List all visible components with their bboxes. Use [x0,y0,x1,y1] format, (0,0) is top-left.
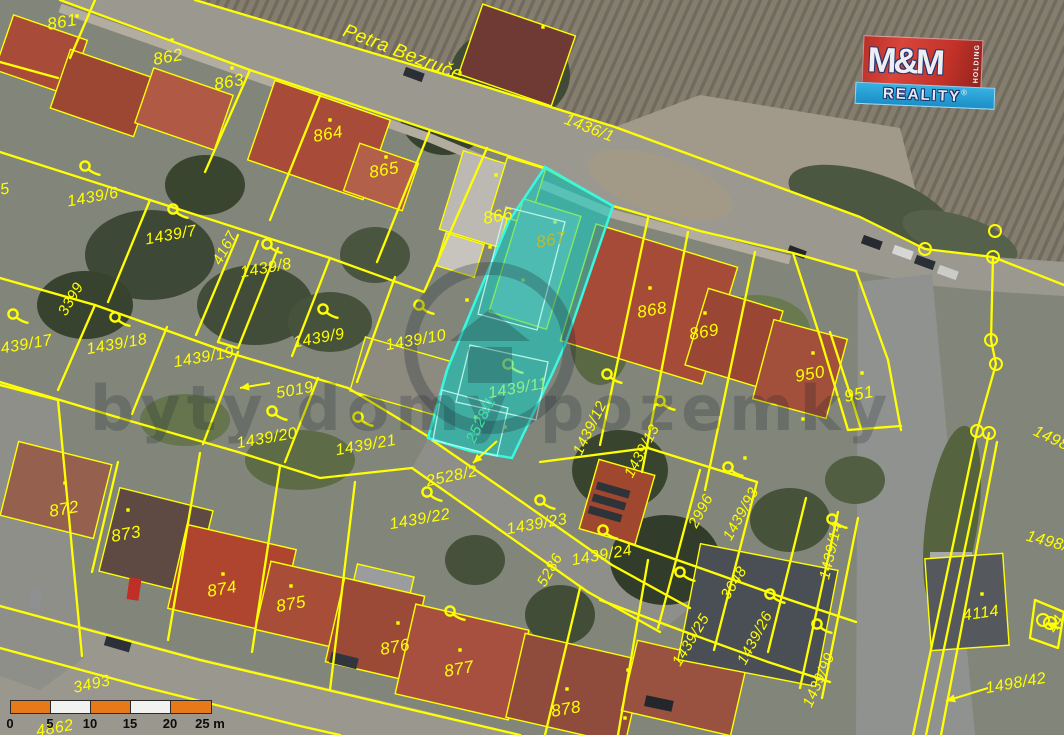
building-point [801,417,804,420]
building-point [230,66,233,69]
scale-tick-label: 20 [163,716,177,731]
building-point [458,648,461,651]
scale-bar-segments [10,700,212,714]
building-point [488,245,491,248]
building-point [465,298,468,301]
scale-tick-label: 25 m [195,716,225,731]
building-point [75,14,78,17]
logo-holding-text: HOLDING [973,44,982,84]
building-point [703,311,706,314]
building-point [980,592,983,595]
building-point [553,220,556,223]
building-point [565,687,568,690]
building-point [626,668,629,671]
logo-reality-text: REALITY [883,85,962,105]
scale-bar: 0510152025 m [10,700,250,730]
scale-segment [11,701,51,713]
registered-mark-icon: ® [961,88,967,97]
scale-tick-label: 10 [83,716,97,731]
building-point [743,456,746,459]
building-point [811,351,814,354]
logo-mm-text: M&M [867,40,943,83]
building-point [503,425,506,428]
building-point [170,38,173,41]
building-point [474,415,477,418]
building-point [648,286,651,289]
building-point [494,173,497,176]
scale-segment [131,701,171,713]
building-point [126,508,129,511]
building-point [860,371,863,374]
building-point [541,25,544,28]
map-canvas: byty domy pozemky 8618628638648658668678… [0,0,1064,735]
building-point [396,621,399,624]
scale-segment [51,701,91,713]
scale-tick-label: 15 [123,716,137,731]
building-point [623,716,626,719]
building-point [328,118,331,121]
building-point [289,584,292,587]
building-point [521,278,524,281]
brand-logo: M&M HOLDING REALITY® [855,35,1006,110]
scale-tick-label: 5 [46,716,53,731]
scale-tick-label: 0 [6,716,13,731]
building-point [63,481,66,484]
scale-segment [171,701,211,713]
building-point [221,572,224,575]
scale-segment [91,701,131,713]
scale-bar-ticks: 0510152025 m [10,714,250,730]
building-point [384,155,387,158]
map-image [0,0,1064,735]
